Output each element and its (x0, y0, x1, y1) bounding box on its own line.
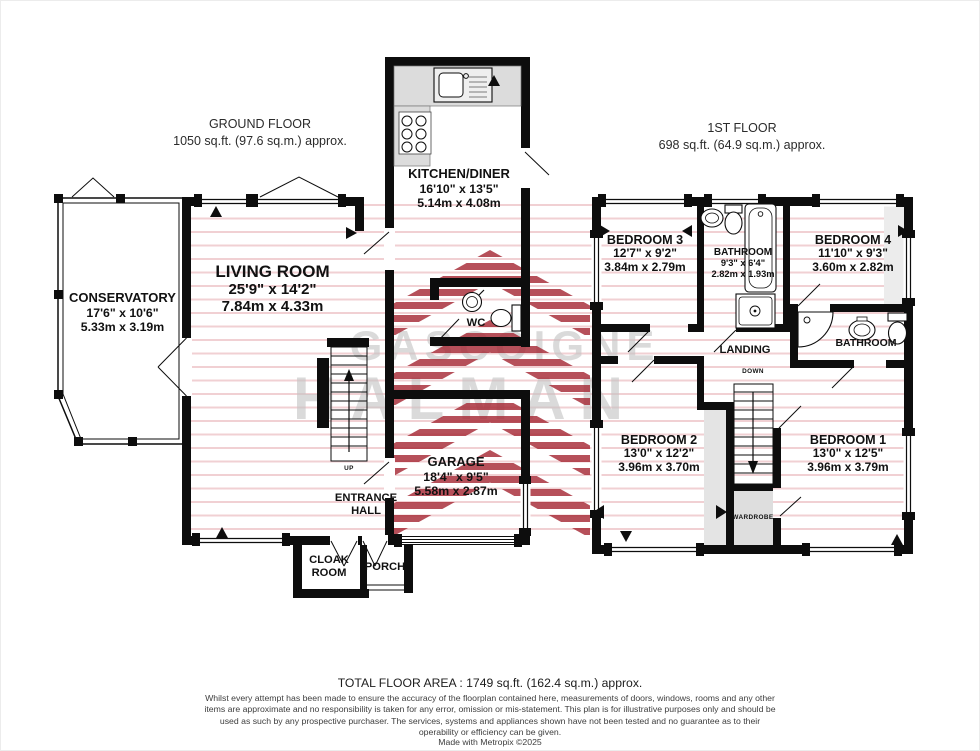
stairs-down-label: DOWN (735, 368, 771, 375)
room-dim-metric: 7.84m x 4.33m (180, 298, 365, 315)
room-name: BATHROOM (695, 247, 791, 258)
room-label-wardrobe: WARDROBE (724, 514, 782, 521)
room-name: KITCHEN/DINER (390, 167, 528, 182)
room-label-cloak-room: CLOAK ROOM (298, 554, 360, 580)
room-name: BEDROOM 2 (590, 433, 728, 447)
room-dim-imperial: 16'10" x 13'5" (390, 182, 528, 196)
room-dim-metric: 5.33m x 3.19m (40, 320, 205, 334)
room-dim-metric: 3.84m x 2.79m (576, 261, 714, 275)
bathroom-sink-icon (701, 209, 723, 227)
marker-triangle (620, 531, 632, 542)
stairs-up-label: UP (339, 465, 359, 472)
marker-triangle (891, 534, 903, 545)
bathroom-toilet-icon (725, 205, 742, 234)
room-dim-imperial: 9'3" x 6'4" (695, 258, 791, 269)
room-label-bedroom-3: BEDROOM 3 12'7" x 9'2" 3.84m x 2.79m (576, 233, 714, 275)
first-floor-title: 1ST FLOOR (572, 120, 912, 137)
floorplan-page: GASCOIGNE HALMAN (0, 0, 980, 751)
ground-floor-header: GROUND FLOOR 1050 sq.ft. (97.6 sq.m.) ap… (90, 116, 430, 150)
disclaimer-text: Whilst every attempt has been made to en… (200, 693, 780, 738)
room-label-bedroom-2: BEDROOM 2 13'0" x 12'2" 3.96m x 3.70m (590, 433, 728, 475)
room-dim-imperial: 18'4" x 9'5" (387, 470, 525, 484)
room-label-bedroom-1: BEDROOM 1 13'0" x 12'5" 3.96m x 3.79m (779, 433, 917, 475)
room-label-living-room: LIVING ROOM 25'9" x 14'2" 7.84m x 4.33m (180, 262, 365, 316)
first-floor-header: 1ST FLOOR 698 sq.ft. (64.9 sq.m.) approx… (572, 120, 912, 154)
ground-floor-area: 1050 sq.ft. (97.6 sq.m.) approx. (90, 133, 430, 150)
room-name: GARAGE (387, 455, 525, 470)
ground-floor-title: GROUND FLOOR (90, 116, 430, 133)
room-dim-metric: 3.60m x 2.82m (784, 261, 922, 275)
room-dim-metric: 5.14m x 4.08m (390, 196, 528, 210)
room-label-wc: WC (455, 317, 497, 330)
room-name: BEDROOM 4 (784, 233, 922, 247)
room-label-bathroom: BATHROOM 9'3" x 6'4" 2.82m x 1.93m (695, 247, 791, 280)
room-label-bathroom-2: BATHROOM (818, 338, 914, 350)
room-dim-imperial: 13'0" x 12'2" (590, 447, 728, 461)
room-name: BEDROOM 3 (576, 233, 714, 247)
room-label-porch: PORCH (357, 561, 413, 574)
room-dim-metric: 2.82m x 1.93m (695, 269, 791, 280)
room-label-landing: LANDING (703, 344, 787, 357)
room-dim-imperial: 25'9" x 14'2" (180, 281, 365, 298)
room-dim-imperial: 11'10" x 9'3" (784, 247, 922, 261)
room-label-entrance-hall: ENTRANCE HALL (320, 492, 412, 518)
kitchen-sink-icon (434, 68, 492, 102)
credit-text: Made with Metropix ©2025 (0, 737, 980, 747)
stairs-down (734, 384, 773, 484)
room-label-bedroom-4: BEDROOM 4 11'10" x 9'3" 3.60m x 2.82m (784, 233, 922, 275)
room-name: LIVING ROOM (180, 262, 365, 281)
first-floor-area: 698 sq.ft. (64.9 sq.m.) approx. (572, 137, 912, 154)
room-name: BEDROOM 1 (779, 433, 917, 447)
room-dim-metric: 3.96m x 3.79m (779, 461, 917, 475)
room-dim-imperial: 13'0" x 12'5" (779, 447, 917, 461)
room-dim-imperial: 12'7" x 9'2" (576, 247, 714, 261)
total-floor-area: TOTAL FLOOR AREA : 1749 sq.ft. (162.4 sq… (0, 676, 980, 690)
shower-icon (736, 294, 775, 328)
marker-triangle (216, 527, 228, 538)
marker-triangle (210, 206, 222, 217)
floorplan-linework (0, 0, 980, 751)
room-dim-metric: 3.96m x 3.70m (590, 461, 728, 475)
stairs-up (317, 338, 369, 461)
room-label-kitchen-diner: KITCHEN/DINER 16'10" x 13'5" 5.14m x 4.0… (390, 167, 528, 210)
wc-sink-icon (463, 290, 485, 312)
